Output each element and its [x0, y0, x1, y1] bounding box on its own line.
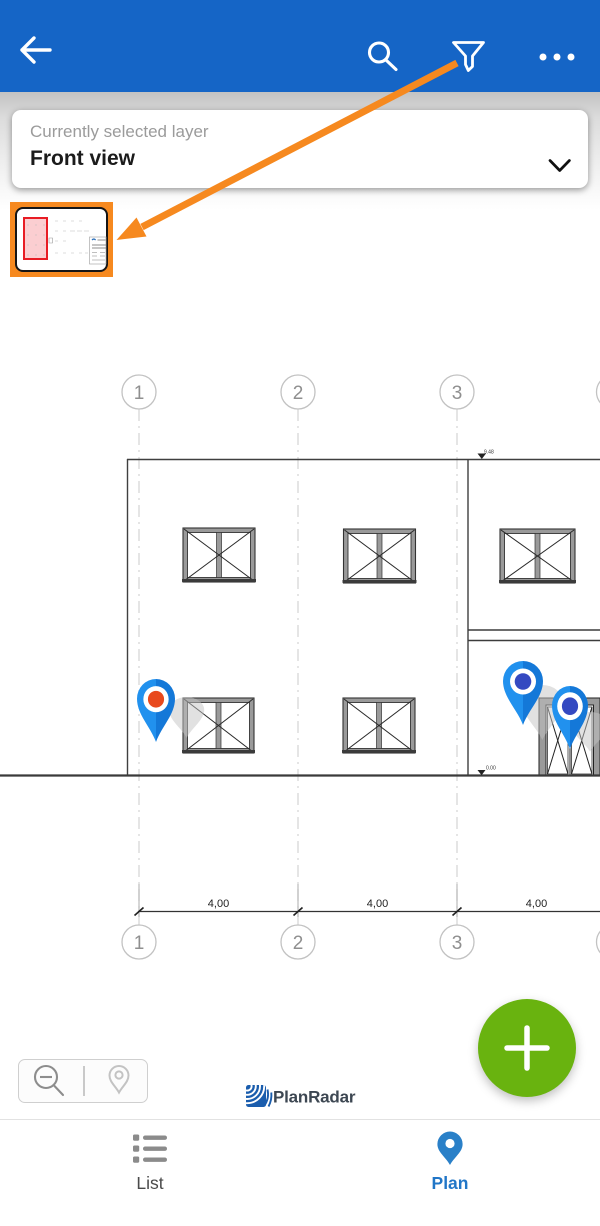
svg-text:PlanRadar: PlanRadar	[273, 1088, 356, 1107]
svg-text:0.00: 0.00	[486, 766, 496, 772]
svg-text:9.48: 9.48	[484, 450, 494, 456]
svg-text:2: 2	[293, 933, 304, 954]
svg-text:3: 3	[452, 933, 463, 954]
svg-text:2: 2	[293, 383, 304, 404]
svg-text:1: 1	[134, 383, 145, 404]
svg-text:3: 3	[452, 383, 463, 404]
svg-text:4,00: 4,00	[526, 898, 547, 910]
svg-text:1: 1	[134, 933, 145, 954]
svg-text:4,00: 4,00	[367, 898, 388, 910]
svg-text:4,00: 4,00	[208, 898, 229, 910]
